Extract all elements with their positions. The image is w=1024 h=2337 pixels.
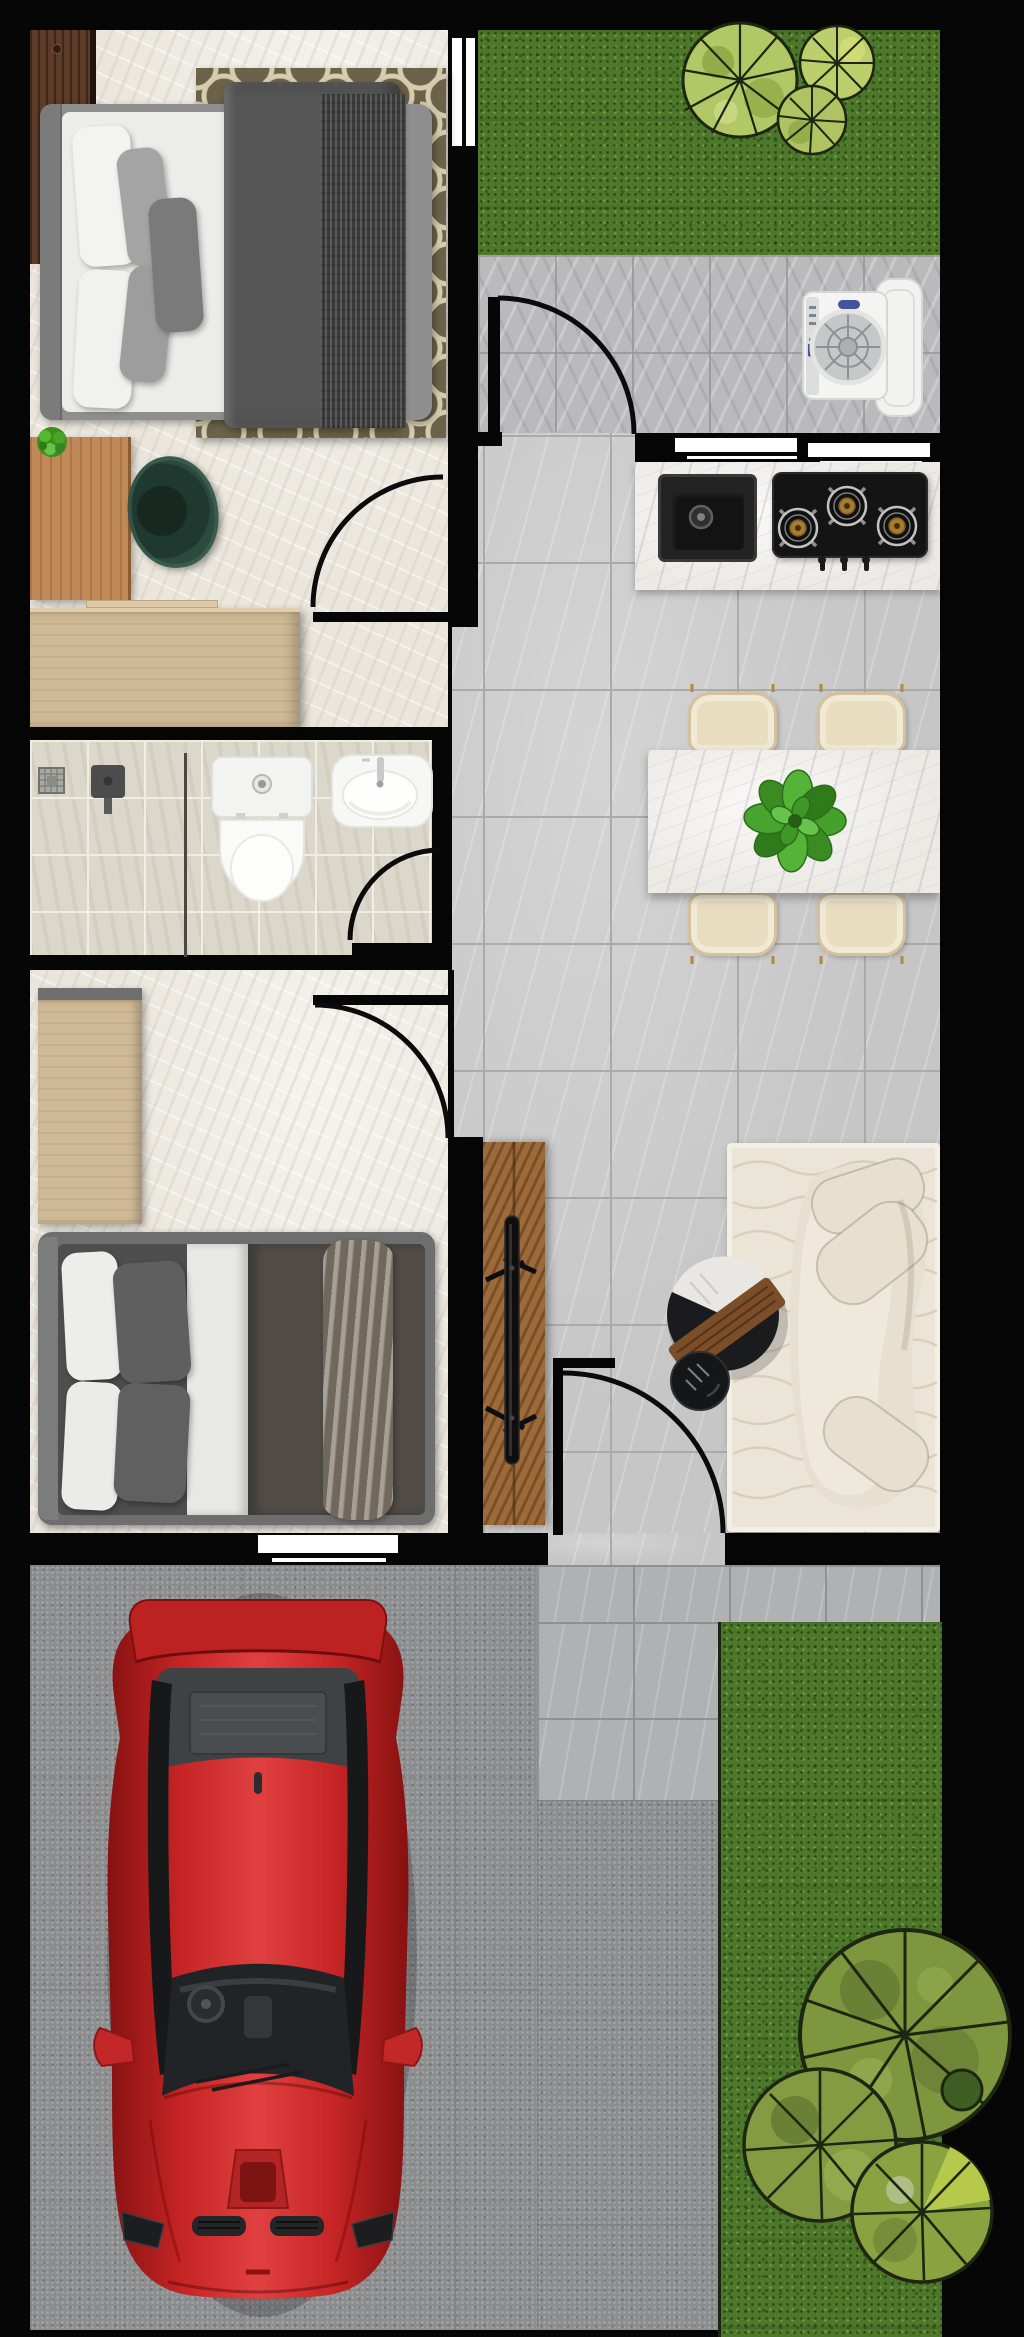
patio-floor <box>478 255 940 433</box>
bedroom-2-window-line <box>272 1558 386 1562</box>
wall-bathroom-right <box>432 727 450 970</box>
entry-door-leaf <box>488 297 500 435</box>
dining-table <box>648 750 940 893</box>
garage-floor <box>30 1565 537 2330</box>
bathroom-door-wall <box>352 943 440 955</box>
bathroom-floor <box>30 740 436 955</box>
garden-right-lawn <box>718 1622 942 2337</box>
driveway-lower <box>537 1800 718 2330</box>
bed-2-throw <box>323 1240 393 1520</box>
wall-bedroom2-right <box>448 970 454 1137</box>
bed-2-headboard <box>38 1237 58 1520</box>
dresser-top-strip <box>86 600 218 608</box>
kitchen-window-right <box>808 443 930 457</box>
kitchen-window-left-line <box>687 456 797 459</box>
bed-1-pillow-dark <box>147 196 204 333</box>
wardrobe-knob <box>52 44 62 54</box>
wall-living-left <box>452 1137 483 1533</box>
dresser <box>30 608 300 727</box>
dining-chair-4 <box>817 892 906 956</box>
gas-stove <box>772 472 928 558</box>
garage-door-stub <box>553 1358 615 1368</box>
bedroom1-door-wall <box>313 612 448 622</box>
bed-1-headboard <box>40 104 62 420</box>
bedroom-1-window <box>452 38 462 146</box>
wardrobe-2 <box>38 988 142 1224</box>
tree-icon <box>942 2070 982 2110</box>
walkway-vertical <box>537 1622 718 1800</box>
garage-door-leaf <box>553 1365 563 1535</box>
floor-plan <box>0 0 1024 2337</box>
dining-chair-2 <box>817 692 906 754</box>
kitchen-sink-basin <box>672 492 744 550</box>
kitchen-window-left <box>675 438 797 452</box>
garden-top-lawn <box>478 30 940 255</box>
bed-1-throw <box>320 94 406 428</box>
shower-divider <box>184 753 187 957</box>
desk <box>30 437 131 600</box>
bedroom2-door-leaf <box>313 995 448 1005</box>
tv-panel <box>483 1142 545 1525</box>
living-rug <box>727 1143 940 1532</box>
bed-2-pillow-dark-1 <box>112 1260 192 1385</box>
bed-2-pillow-white-1 <box>61 1251 124 1382</box>
doorway-floor <box>548 1533 725 1565</box>
bedroom-1-window-b <box>466 38 475 146</box>
bed-2-pillow-white-2 <box>61 1381 124 1512</box>
dining-chair-3 <box>688 892 777 956</box>
bedroom-2-window <box>258 1535 398 1553</box>
dining-chair-1 <box>688 692 777 754</box>
bed-2-pillow-dark-2 <box>113 1382 191 1504</box>
bed-2-sheet <box>187 1244 248 1515</box>
walkway-horizontal <box>537 1565 940 1622</box>
